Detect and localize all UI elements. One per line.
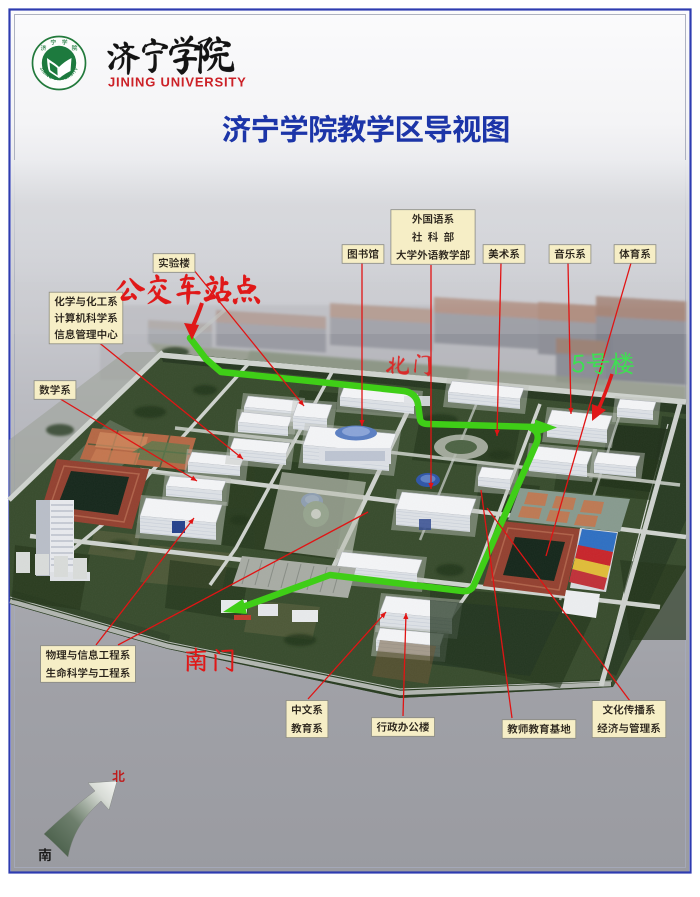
svg-text:JINING UNIVERSITY: JINING UNIVERSITY <box>108 75 247 90</box>
